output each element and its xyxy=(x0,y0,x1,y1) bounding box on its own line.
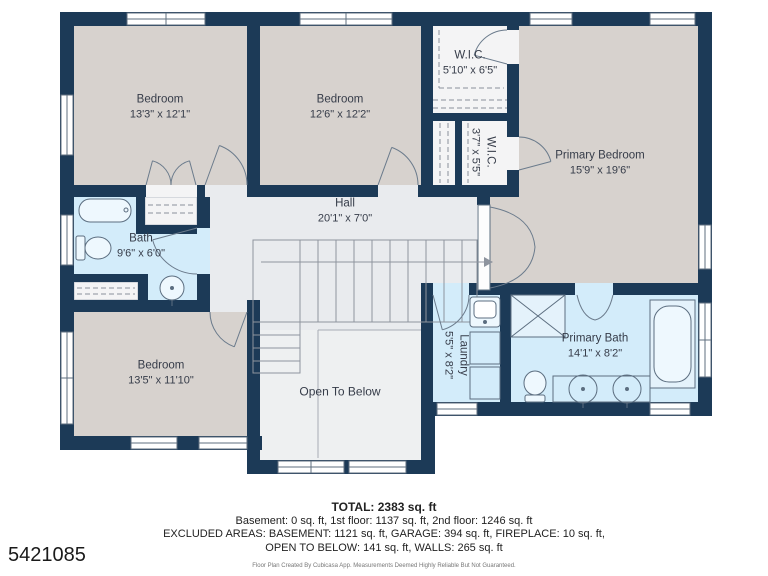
double-door-frame xyxy=(478,205,490,290)
toilet-icon xyxy=(76,236,111,260)
room-label-hall: Hall 20'1" x 7'0" xyxy=(318,195,372,226)
primary-bathtub-icon xyxy=(650,300,695,388)
shower-icon xyxy=(511,295,565,337)
room-label-bedroom-2: Bedroom 12'6" x 12'2" xyxy=(310,91,370,122)
room-label-bath: Bath 9'6" x 6'0" xyxy=(117,230,165,261)
listing-id: 5421085 xyxy=(8,544,86,567)
disclaimer: Floor Plan Created By Cubicasa App. Meas… xyxy=(0,563,768,569)
room-label-bedroom-3: Bedroom 13'5" x 11'10" xyxy=(128,357,194,388)
total-area: TOTAL: 2383 sq. ft xyxy=(0,500,768,514)
excluded-areas-2: OPEN TO BELOW: 141 sq. ft, WALLS: 265 sq… xyxy=(0,542,768,555)
primary-toilet-icon xyxy=(524,371,546,402)
excluded-areas-1: EXCLUDED AREAS: BASEMENT: 1121 sq. ft, G… xyxy=(0,528,768,541)
closet-1-floor xyxy=(145,197,197,225)
room-label-wic-2: W.I.C. 3'7" x 5'5" xyxy=(467,128,498,176)
floor-areas: Basement: 0 sq. ft, 1st floor: 1137 sq. … xyxy=(0,515,768,528)
closet-2-floor xyxy=(74,282,138,300)
bathtub-icon xyxy=(79,199,131,222)
laundry-sink-icon xyxy=(470,297,500,327)
room-label-laundry: Laundry 5'5" x 8'2" xyxy=(440,331,471,379)
floor-plan-drawing xyxy=(0,0,768,576)
room-label-open-to-below: Open To Below xyxy=(299,384,380,401)
room-label-primary-bedroom: Primary Bedroom 15'9" x 19'6" xyxy=(555,147,644,178)
room-label-bedroom-1: Bedroom 13'3" x 12'1" xyxy=(130,91,190,122)
area-summary: TOTAL: 2383 sq. ft Basement: 0 sq. ft, 1… xyxy=(0,500,768,569)
floor-plan-page: Bedroom 13'3" x 12'1" Bedroom 12'6" x 12… xyxy=(0,0,768,576)
room-label-primary-bath: Primary Bath 14'1" x 8'2" xyxy=(562,330,628,361)
room-label-wic-1: W.I.C. 5'10" x 6'5" xyxy=(443,47,497,78)
